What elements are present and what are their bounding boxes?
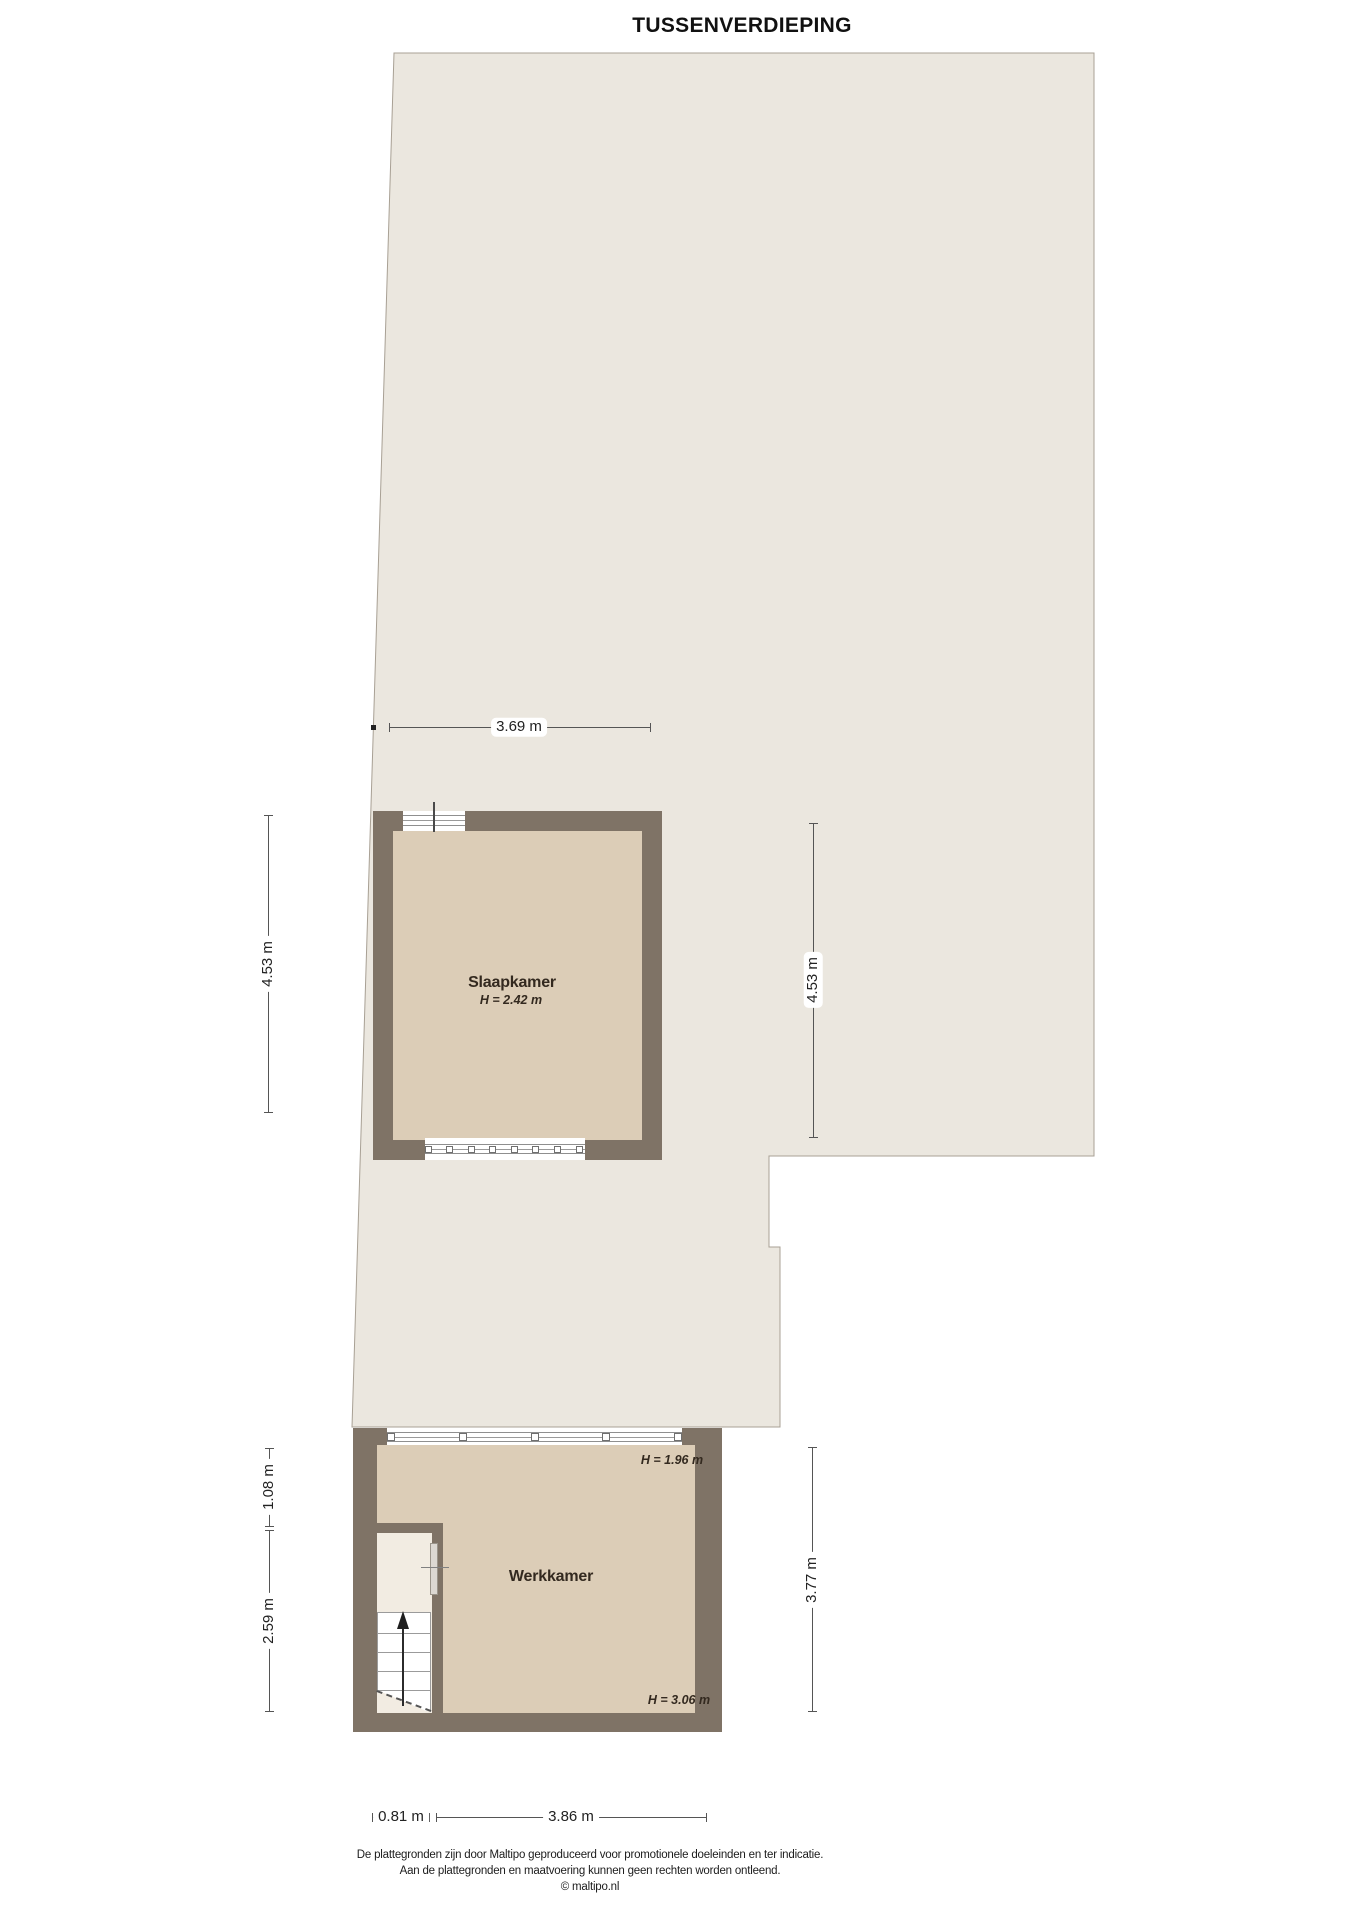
dimension-label-left-mid: 1.08 m <box>260 1459 279 1515</box>
window-pane <box>425 1146 432 1153</box>
footer-line-1: De plattegronden zijn door Maltipo gepro… <box>357 1847 823 1863</box>
roof-area-polygon <box>352 53 1094 1427</box>
footer-line-3: © maltipo.nl <box>357 1879 823 1895</box>
stair-direction-arrow <box>402 1629 404 1706</box>
stairwell-door <box>430 1543 438 1595</box>
stairwell-wall-top <box>375 1523 443 1533</box>
floorplan-canvas: TUSSENVERDIEPING <box>0 0 1358 1920</box>
stair-step <box>378 1671 430 1672</box>
stair-step <box>378 1633 430 1634</box>
footer-disclaimer: De plattegronden zijn door Maltipo gepro… <box>357 1847 823 1895</box>
window-pane <box>387 1433 395 1441</box>
dimension-label-left-lower: 2.59 m <box>260 1593 279 1649</box>
dimension-label-bottom-right: 3.86 m <box>543 1808 599 1827</box>
werkkamer-top-window-glazing <box>387 1432 682 1442</box>
window-pane <box>532 1146 539 1153</box>
window-pane <box>531 1433 539 1441</box>
dimension-label-right-lower: 3.77 m <box>803 1552 822 1608</box>
window-pane <box>554 1146 561 1153</box>
stair-arrow-head <box>397 1611 409 1629</box>
dimension-label-left-upper: 4.53 m <box>259 936 278 992</box>
window-pane <box>602 1433 610 1441</box>
dimension-edge-dot <box>371 725 376 730</box>
slaapkamer-height-label: H = 2.42 m <box>480 993 542 1007</box>
slaapkamer-label: Slaapkamer <box>468 974 556 992</box>
window-pane <box>489 1146 496 1153</box>
window-section-marker <box>433 802 435 832</box>
dimension-label-bottom-left: 0.81 m <box>373 1808 429 1827</box>
footer-line-2: Aan de plattegronden en maatvoering kunn… <box>357 1863 823 1879</box>
stair-step <box>378 1652 430 1653</box>
window-pane <box>674 1433 682 1441</box>
window-pane <box>459 1433 467 1441</box>
werkkamer-height-back-label: H = 3.06 m <box>648 1693 710 1707</box>
window-pane <box>468 1146 475 1153</box>
dimension-label-right-upper: 4.53 m <box>804 952 823 1008</box>
window-pane <box>446 1146 453 1153</box>
werkkamer-height-front-label: H = 1.96 m <box>641 1453 703 1467</box>
werkkamer-label: Werkkamer <box>509 1568 593 1586</box>
window-pane <box>576 1146 583 1153</box>
dimension-label-top-width: 3.69 m <box>491 718 547 737</box>
stair-step <box>378 1690 430 1691</box>
slaapkamer-bottom-window-glazing <box>425 1144 585 1154</box>
window-pane <box>511 1146 518 1153</box>
door-marker <box>421 1567 449 1568</box>
